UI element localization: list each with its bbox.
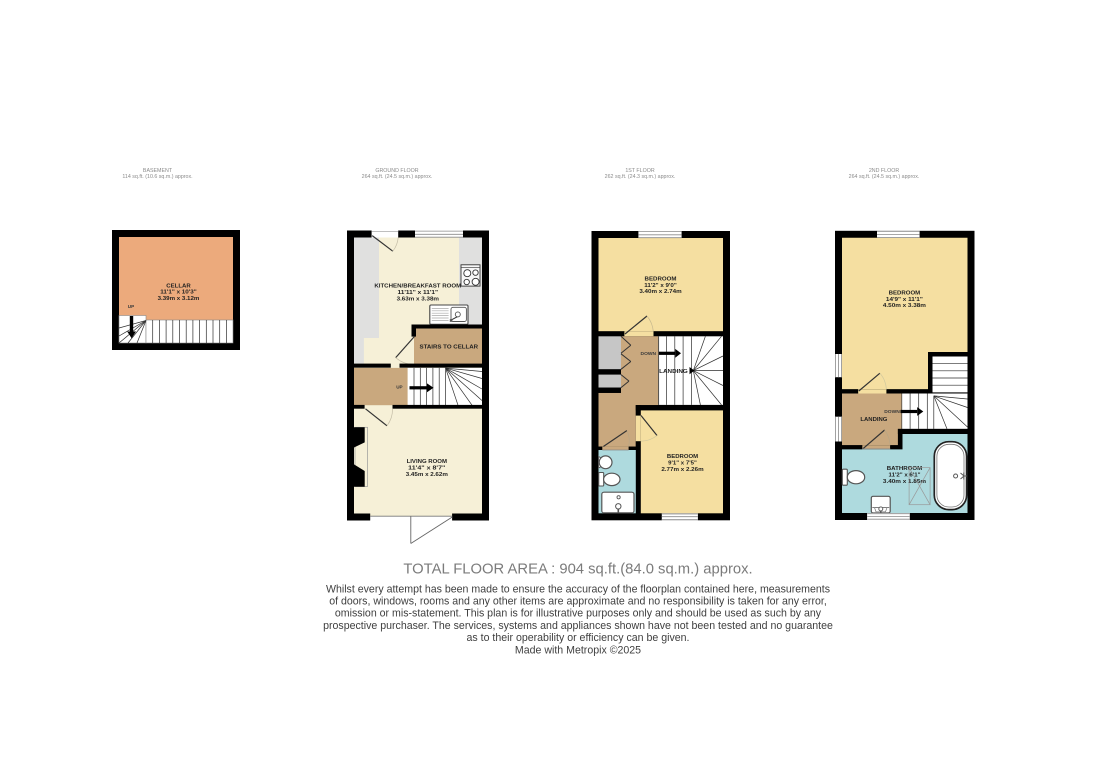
svg-text:3.63m x 3.38m: 3.63m x 3.38m: [397, 296, 439, 302]
svg-text:11'4" x 8'7": 11'4" x 8'7": [408, 466, 445, 472]
svg-text:3.40m x 2.74m: 3.40m x 2.74m: [639, 289, 681, 295]
svg-text:4.50m x 3.38m: 4.50m x 3.38m: [883, 303, 926, 309]
svg-text:omission or mis-statement. Thi: omission or mis-statement. This plan is …: [335, 608, 822, 620]
svg-text:11'1" x 10'3": 11'1" x 10'3": [160, 290, 197, 296]
svg-text:11'2" x 9'0": 11'2" x 9'0": [644, 283, 677, 289]
svg-text:of doors, windows, rooms and a: of doors, windows, rooms and any other i…: [329, 596, 827, 608]
svg-text:LANDING: LANDING: [659, 369, 688, 375]
svg-text:2.77m x 2.26m: 2.77m x 2.26m: [661, 467, 703, 473]
svg-text:11'2" x 6'1": 11'2" x 6'1": [889, 473, 921, 479]
svg-text:UP: UP: [396, 385, 402, 390]
svg-text:264 sq.ft. (24.5 sq.m.) approx: 264 sq.ft. (24.5 sq.m.) approx.: [362, 174, 433, 180]
svg-text:9'1" x 7'5": 9'1" x 7'5": [668, 460, 697, 466]
svg-text:Whilst every attempt has been: Whilst every attempt has been made to en…: [326, 583, 830, 595]
svg-text:STAIRS TO CELLAR: STAIRS TO CELLAR: [420, 344, 479, 350]
svg-text:3.45m x 2.62m: 3.45m x 2.62m: [406, 472, 448, 478]
svg-text:14'9" x 11'1": 14'9" x 11'1": [886, 297, 923, 303]
svg-text:3.40m x 1.85m: 3.40m x 1.85m: [883, 479, 926, 485]
svg-text:TOTAL FLOOR AREA : 904 sq.ft.(: TOTAL FLOOR AREA : 904 sq.ft.(84.0 sq.m.…: [403, 562, 752, 578]
svg-text:3.39m x 3.12m: 3.39m x 3.12m: [158, 296, 200, 302]
svg-text:BEDROOM: BEDROOM: [667, 454, 698, 460]
svg-text:prospective purchaser. The ser: prospective purchaser. The services, sys…: [323, 620, 833, 632]
svg-text:114 sq.ft. (10.6 sq.m.) approx: 114 sq.ft. (10.6 sq.m.) approx.: [122, 174, 192, 180]
svg-text:CELLAR: CELLAR: [166, 284, 191, 290]
svg-text:262 sq.ft. (24.3 sq.m.) approx: 262 sq.ft. (24.3 sq.m.) approx.: [605, 174, 676, 180]
svg-text:BEDROOM: BEDROOM: [645, 277, 677, 283]
svg-text:KITCHEN/BREAKFAST ROOM: KITCHEN/BREAKFAST ROOM: [374, 284, 461, 290]
svg-text:as to their operability or eff: as to their operability or efficiency ca…: [467, 632, 690, 644]
svg-text:264 sq.ft. (24.5 sq.m.) approx: 264 sq.ft. (24.5 sq.m.) approx.: [849, 174, 920, 180]
svg-text:LIVING ROOM: LIVING ROOM: [407, 459, 447, 465]
svg-text:Made with Metropix ©2025: Made with Metropix ©2025: [515, 644, 641, 656]
svg-text:LANDING: LANDING: [860, 417, 887, 423]
svg-text:UP: UP: [128, 304, 134, 309]
svg-text:DOWN: DOWN: [884, 409, 900, 414]
svg-text:11'11" x 11'1": 11'11" x 11'1": [398, 290, 439, 296]
svg-text:BEDROOM: BEDROOM: [889, 291, 921, 297]
svg-text:BATHROOM: BATHROOM: [887, 466, 923, 472]
svg-text:DOWN: DOWN: [641, 351, 657, 356]
